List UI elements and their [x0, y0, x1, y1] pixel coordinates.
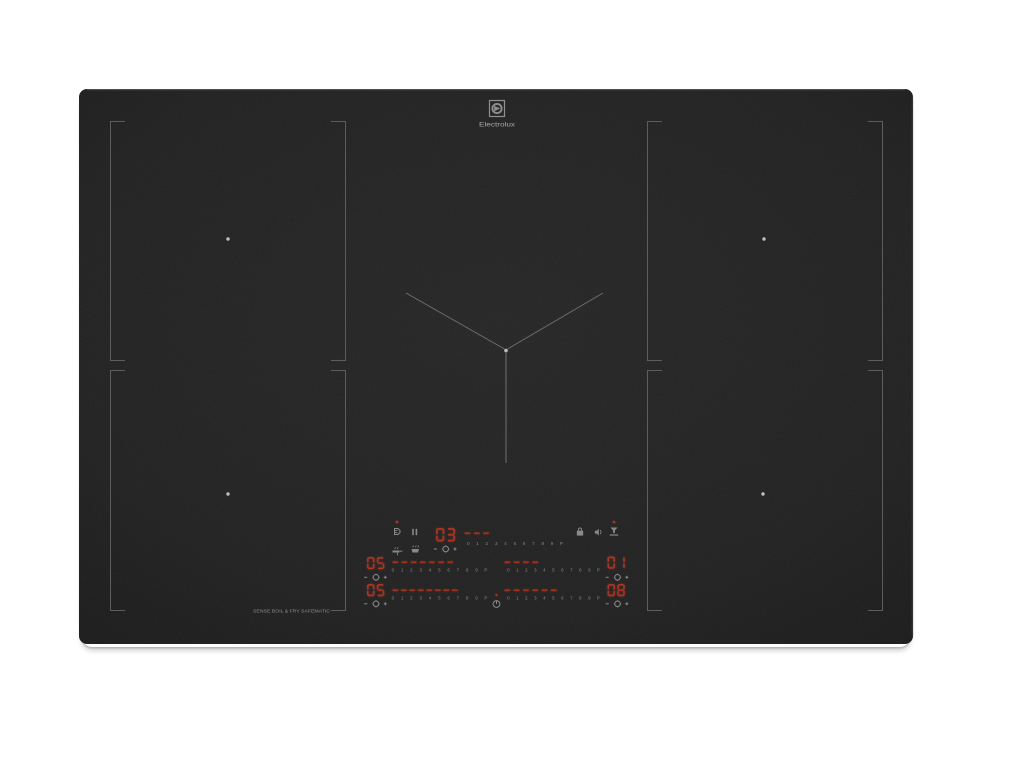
svg-text:SENSE BOIL & FRY SAFEMATIC: SENSE BOIL & FRY SAFEMATIC [253, 609, 331, 614]
svg-text:Electrolux: Electrolux [479, 122, 516, 129]
